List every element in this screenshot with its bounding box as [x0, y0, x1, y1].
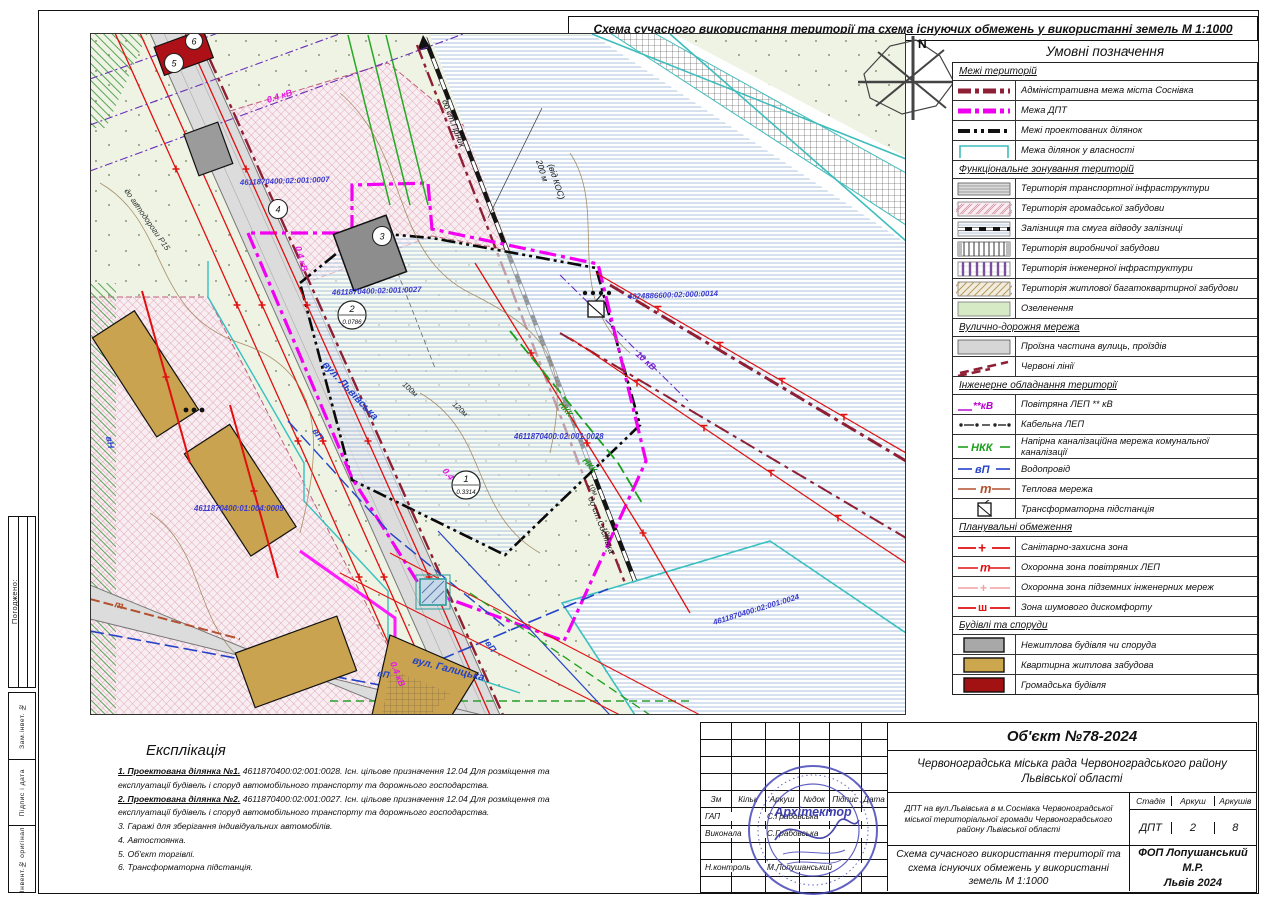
legend-item-label: Озеленення [1016, 299, 1257, 318]
svg-text:ш: ш [978, 602, 987, 614]
marker-6: 6 [191, 37, 196, 47]
approved-strip: Погоджено: [8, 516, 36, 688]
legend-symbol [953, 199, 1016, 218]
transformer-station-blue [416, 575, 450, 609]
firm-line1: ФОП Лопушанський М.Р. [1130, 846, 1256, 876]
lepzone-icon: т [956, 558, 1012, 576]
legend-symbol [953, 635, 1016, 654]
frame-strip: Зам.інвет. № Підпис і дата Інвент.№ ориг… [8, 692, 36, 893]
legend-item-label: Повітряна ЛЕП ** кВ [1016, 395, 1257, 414]
explication-item: 4. Автостоянка. [118, 834, 596, 848]
firm-name: ФОП Лопушанський М.Р. Львів 2024 [1129, 846, 1256, 891]
marker-3: 3 [379, 232, 384, 242]
explication-item: 1. Проектована ділянка №1. 4611870400:02… [118, 765, 596, 793]
sheet-label: Аркуш [1171, 796, 1213, 806]
svg-text:т: т [980, 560, 991, 574]
legend-symbol [953, 121, 1016, 140]
nkk-icon: НКК [956, 438, 1012, 456]
svg-text:т: т [980, 481, 992, 496]
legend-item-label: Нежитлова будівля чи споруда [1016, 635, 1257, 654]
legend-item-label: Охоронна зона повітряних ЛЕП [1016, 557, 1257, 576]
col-header: №док [799, 795, 829, 804]
col-header: Аркуш [765, 795, 799, 804]
legend-item-label: Межа ділянок у власності [1016, 141, 1257, 160]
svg-text:**кВ: **кВ [973, 401, 993, 412]
residential-icon [956, 280, 1012, 298]
legend-symbol: НКК [953, 435, 1016, 458]
legend-symbol [953, 101, 1016, 120]
legend-symbol: вП [953, 459, 1016, 478]
legend-item-label: Територія інженерної інфраструктури [1016, 259, 1257, 278]
lep-air-icon: **кВ [956, 396, 1012, 414]
legend-symbol: + [953, 577, 1016, 596]
own-icon [956, 142, 1012, 160]
role-label: Виконала [701, 829, 767, 838]
col-header: Підпис [829, 795, 861, 804]
legend-item: Межа ДПТ [953, 101, 1257, 121]
admin-icon [956, 82, 1012, 100]
sanzone-icon: + [956, 538, 1012, 556]
heat-icon: т [956, 480, 1012, 498]
legend-table: Межі територійАдміністративна межа міста… [952, 62, 1258, 695]
role-name: С.Грабовська [767, 812, 871, 821]
legend-panel: Умовні позначення Межі територійАдмініст… [952, 44, 1258, 695]
bld-gray-icon [956, 636, 1012, 654]
legend-item: вПВодопровід [953, 459, 1257, 479]
project-icon [956, 122, 1012, 140]
legend-symbol [953, 81, 1016, 100]
legend-item: Територія інженерної інфраструктури [953, 259, 1257, 279]
explication-item: 3. Гаражі для зберігання індивідуальних … [118, 820, 596, 834]
legend-item: Червоні лінії [953, 357, 1257, 377]
sheet-name: Схема сучасного використання території т… [887, 846, 1129, 891]
redlines-icon [956, 358, 1012, 376]
legend-item: Залізниця та смуга відводу залізниці [953, 219, 1257, 239]
object-number: Об'єкт №78-2024 [887, 723, 1256, 751]
legend-item: Громадська будівля [953, 675, 1257, 694]
parcel-label: 4611870400:01:004:0005 [193, 504, 284, 513]
north-label: N [918, 37, 927, 51]
legend-section-header: Інженерне обладнання території [953, 377, 1257, 395]
explication-item: 6. Трансформаторна підстанція. [118, 861, 596, 875]
explication-block: Експлікація 1. Проектована ділянка №1. 4… [118, 742, 596, 875]
role-label: Н.контроль [701, 863, 767, 872]
grid-header-row: Зм Кільк Аркуш №док Підпис Дата [701, 791, 887, 808]
engineering-icon [956, 260, 1012, 278]
explication-item: 5. Об'єкт торгівлі. [118, 848, 596, 862]
marker-2: 2 [348, 304, 355, 315]
legend-item: Нежитлова будівля чи споруда [953, 635, 1257, 655]
legend-symbol [953, 655, 1016, 674]
legend-item-label: Залізниця та смуга відводу залізниці [1016, 219, 1257, 238]
legend-item-label: Громадська будівля [1016, 675, 1257, 694]
legend-symbol [953, 279, 1016, 298]
legend-item-label: Територія транспортної інфраструктури [1016, 179, 1257, 198]
legend-section-header: Межі територій [953, 63, 1257, 81]
strip-divider [27, 517, 28, 687]
legend-section-header: Вулично-дорожня мережа [953, 319, 1257, 337]
legend-item: Кабельна ЛЕП [953, 415, 1257, 435]
legend-symbol: **кВ [953, 395, 1016, 414]
role-row: Н.контроль М.Лопушанський [701, 860, 887, 877]
site-plan-map: вул. Львівська вул. Галицька до автодоро… [90, 33, 906, 715]
role-name: М.Лопушанський [767, 863, 871, 872]
water-label: вП [377, 668, 391, 680]
legend-item: Територія громадської забудови [953, 199, 1257, 219]
legend-item-label: Кабельна ЛЕП [1016, 415, 1257, 434]
noise-icon: ш [956, 598, 1012, 616]
legend-symbol [953, 499, 1016, 518]
legend-symbol [953, 299, 1016, 318]
strip-label: Інвент.№ оригінал [19, 827, 26, 892]
legend-item-label: Санітарно-захисна зона [1016, 537, 1257, 556]
tp-icon [956, 500, 1012, 518]
legend-symbol [953, 141, 1016, 160]
firm-line2: Львів 2024 [1130, 876, 1256, 891]
legend-item: Проїзна частина вулиць, проїздів [953, 337, 1257, 357]
legend-section-header: Функціональне зонування територій [953, 161, 1257, 179]
legend-symbol [953, 239, 1016, 258]
svg-text:вП: вП [975, 464, 991, 476]
grid-row [701, 757, 887, 774]
legend-symbol: т [953, 479, 1016, 498]
north-compass-icon: N [856, 34, 960, 122]
legend-item-label: Територія житлової багатоквартирної забу… [1016, 279, 1257, 298]
legend-item-label: Зона шумового дискомфорту [1016, 597, 1257, 616]
legend-item: Територія виробничої забудови [953, 239, 1257, 259]
legend-symbol: + [953, 537, 1016, 556]
role-label: ГАП [701, 812, 767, 821]
role-row: Виконала С.Грабовська [701, 826, 887, 843]
parcel-label: 4611870400:02:001:0028 [513, 432, 604, 441]
svg-text:+: + [980, 581, 987, 595]
vp-icon: вП [956, 460, 1012, 478]
bld-tan-icon [956, 656, 1012, 674]
legend-item: Межа ділянок у власності [953, 141, 1257, 161]
legend-item-label: Проїзна частина вулиць, проїздів [1016, 337, 1257, 356]
lep-cable-icon [956, 416, 1012, 434]
strip-label: Зам.інвет. № [19, 703, 26, 749]
legend-item-label: Адміністративна межа міста Соснівка [1016, 81, 1257, 100]
svg-text:НКК: НКК [971, 442, 994, 454]
legend-item-label: Квартирна житлова забудова [1016, 655, 1257, 674]
legend-symbol [953, 357, 1016, 376]
legend-symbol [953, 179, 1016, 198]
legend-symbol [953, 675, 1016, 694]
legend-symbol: ш [953, 597, 1016, 616]
stage-header: Стадія Аркуш Аркушів [1129, 793, 1256, 809]
legend-symbol [953, 415, 1016, 434]
legend-item: **кВПовітряна ЛЕП ** кВ [953, 395, 1257, 415]
marker-2-area: 0.0786 [342, 319, 362, 326]
legend-item: +Санітарно-захисна зона [953, 537, 1257, 557]
legend-symbol [953, 259, 1016, 278]
legend-section-header: Планувальні обмеження [953, 519, 1257, 537]
sheet-number: 2 [1171, 822, 1213, 834]
legend-item-label: Трансформаторна підстанція [1016, 499, 1257, 518]
legend-item-label: Межа ДПТ [1016, 101, 1257, 120]
grid-row [701, 740, 887, 757]
bld-red-icon [956, 676, 1012, 694]
legend-item-label: Водопровід [1016, 459, 1257, 478]
project-name: ДПТ на вул.Львівська в м.Соснівка Червон… [887, 793, 1129, 846]
marker-1: 1 [463, 474, 468, 485]
legend-item: Квартирна житлова забудова [953, 655, 1257, 675]
stage-value: ДПТ [1130, 822, 1171, 834]
stage-values: ДПТ 2 8 [1129, 809, 1256, 846]
legend-section-header: Будівлі та споруди [953, 617, 1257, 635]
svg-text:+: + [978, 539, 986, 555]
marker-4: 4 [275, 205, 280, 215]
legend-item: тОхоронна зона повітряних ЛЕП [953, 557, 1257, 577]
legend-item-label: Межі проектованих ділянок [1016, 121, 1257, 140]
industrial-icon [956, 240, 1012, 258]
legend-item: НККНапірна каналізаційна мережа комуналь… [953, 435, 1257, 459]
legend-item: +Охоронна зона підземних інженерних мере… [953, 577, 1257, 597]
role-name: С.Грабовська [767, 829, 871, 838]
strip-cell: Інвент.№ оригінал [9, 826, 35, 892]
legend-item-label: Червоні лінії [1016, 357, 1257, 376]
public-icon [956, 200, 1012, 218]
sheets-label: Аркушів [1214, 796, 1256, 806]
rail-icon [956, 220, 1012, 238]
legend-title: Умовні позначення [952, 44, 1258, 59]
sheets-total: 8 [1214, 822, 1256, 834]
legend-item: Адміністративна межа міста Соснівка [953, 81, 1257, 101]
stage-label: Стадія [1130, 796, 1171, 806]
underzone-icon: + [956, 578, 1012, 596]
grid-row [701, 774, 887, 791]
legend-item-label: Напірна каналізаційна мережа комунальної… [1016, 435, 1257, 458]
legend-item-label: Територія виробничої забудови [1016, 239, 1257, 258]
grid-row [701, 877, 887, 894]
role-row: ГАП С.Грабовська [701, 808, 887, 825]
legend-item: Озеленення [953, 299, 1257, 319]
legend-item: тТеплова мережа [953, 479, 1257, 499]
explication-item: 2. Проектована ділянка №2. 4611870400:02… [118, 793, 596, 821]
strip-cell: Зам.інвет. № [9, 693, 35, 760]
legend-symbol: т [953, 557, 1016, 576]
grid-row [701, 723, 887, 740]
legend-item: Межі проектованих ділянок [953, 121, 1257, 141]
transport-icon [956, 180, 1012, 198]
title-block-grid: Зм Кільк Аркуш №док Підпис Дата ГАП С.Гр… [701, 723, 887, 894]
legend-item-label: Охоронна зона підземних інженерних мереж [1016, 577, 1257, 596]
legend-item: Територія транспортної інфраструктури [953, 179, 1257, 199]
grid-row [701, 843, 887, 860]
organization-name: Червоноградська міська рада Червоноградс… [887, 751, 1256, 793]
legend-item-label: Теплова мережа [1016, 479, 1257, 498]
marker-1-area: 0.3314 [456, 489, 476, 496]
col-header: Кільк [731, 795, 765, 804]
roadway-icon [956, 338, 1012, 356]
col-header: Дата [861, 795, 887, 804]
dpt-icon [956, 102, 1012, 120]
title-block: Зм Кільк Аркуш №док Підпис Дата ГАП С.Гр… [700, 722, 1257, 893]
col-header: Зм [701, 795, 731, 804]
explication-title: Експлікація [146, 742, 596, 759]
legend-item-label: Територія громадської забудови [1016, 199, 1257, 218]
approved-label: Погоджено: [10, 579, 19, 624]
strip-cell: Підпис і дата [9, 760, 35, 827]
legend-symbol [953, 219, 1016, 238]
legend-item: шЗона шумового дискомфорту [953, 597, 1257, 617]
legend-item: Територія житлової багатоквартирної забу… [953, 279, 1257, 299]
greenery-icon [956, 300, 1012, 318]
strip-label: Підпис і дата [19, 769, 26, 816]
legend-symbol [953, 337, 1016, 356]
legend-item: Трансформаторна підстанція [953, 499, 1257, 519]
